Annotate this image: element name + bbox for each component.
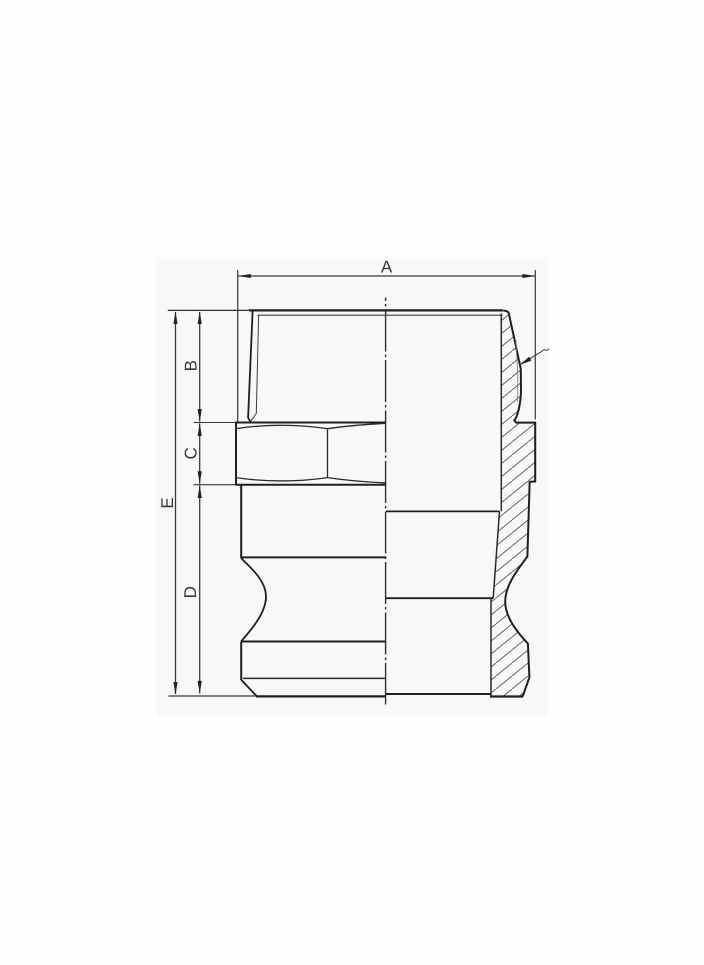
svg-text:D: D [181, 586, 200, 598]
svg-text:E: E [158, 497, 177, 508]
svg-text:A: A [381, 258, 393, 277]
svg-text:B: B [182, 360, 201, 371]
svg-text:C: C [182, 447, 201, 459]
